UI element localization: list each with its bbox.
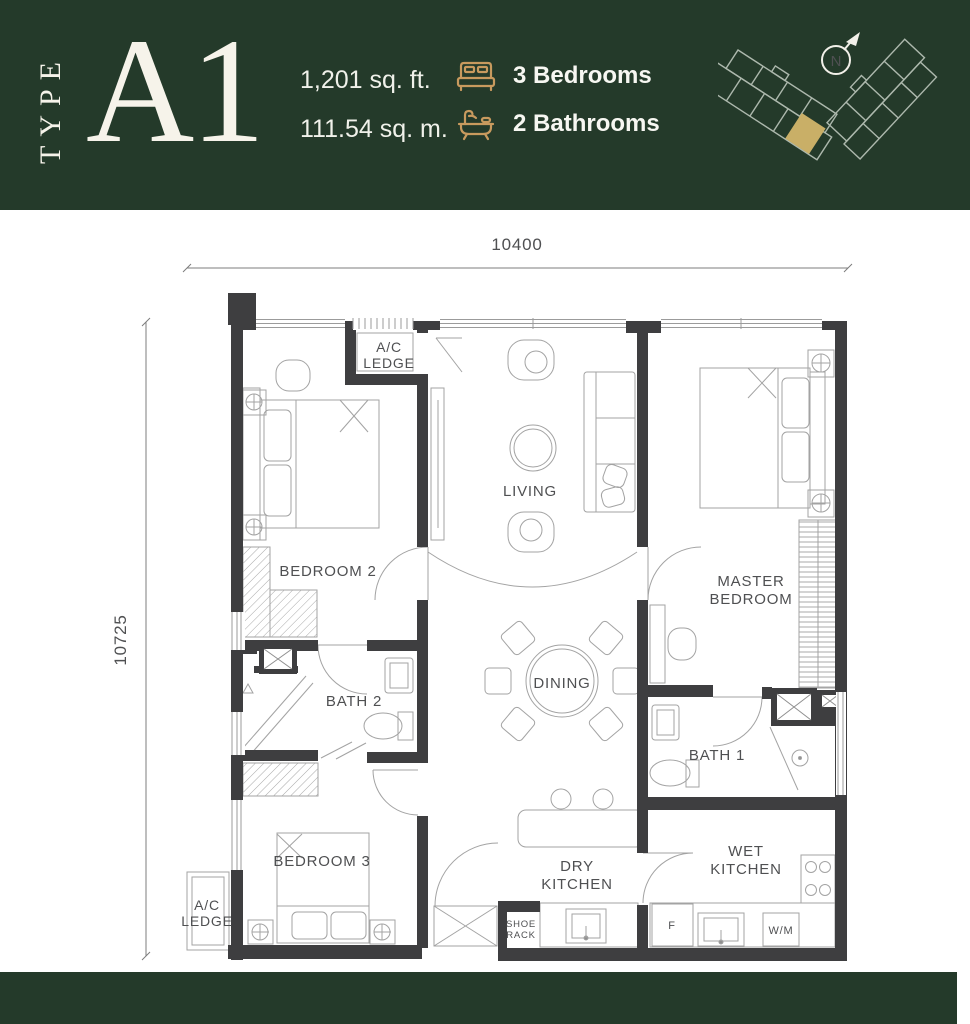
bathrooms-label: 2 Bathrooms [513, 110, 660, 138]
bedroom3-label: BEDROOM 3 [273, 853, 370, 870]
bed-icon [455, 58, 497, 94]
ac-ledge-bottom-label-2: LEDGE [181, 913, 232, 929]
header-banner: TYPE A1 1,201 sq. ft. 111.54 sq. m. 3 Be… [0, 0, 970, 210]
door-arcs [318, 547, 762, 906]
bedrooms-label: 3 Bedrooms [513, 62, 652, 90]
dining-label: DINING [533, 675, 590, 692]
bathrooms-row: 2 Bathrooms [455, 100, 660, 148]
feature-list: 3 Bedrooms 2 Bathrooms [455, 52, 660, 148]
bath2-label: BATH 2 [326, 693, 382, 710]
washer-label: W/M [768, 925, 793, 937]
bath1-label: BATH 1 [689, 747, 745, 764]
wet-kitchen-label-2: KITCHEN [710, 861, 781, 878]
compass-n: N [831, 53, 842, 70]
ac-ledge-bottom-label-1: A/C [194, 897, 220, 913]
building-key-plan: N [718, 8, 968, 203]
area-sqm: 111.54 sq. m. [300, 105, 448, 154]
dim-height-label: 10725 [111, 614, 130, 665]
highlighted-unit [786, 114, 824, 153]
wet-kitchen-label-1: WET [728, 843, 764, 860]
dim-width-label: 10400 [491, 235, 542, 254]
master-bedroom-label-2: BEDROOM [709, 591, 792, 608]
dry-kitchen-label-2: KITCHEN [541, 876, 612, 893]
bedroom2-label: BEDROOM 2 [279, 563, 376, 580]
area-block: 1,201 sq. ft. 111.54 sq. m. [300, 56, 448, 154]
bedrooms-row: 3 Bedrooms [455, 52, 660, 100]
area-sqft: 1,201 sq. ft. [300, 56, 448, 105]
dry-kitchen-label-1: DRY [560, 858, 594, 875]
ac-ledge-top-label-2: LEDGE [363, 355, 414, 371]
type-label: TYPE [36, 42, 66, 164]
shoe-rack-label-1: SHOE [506, 919, 536, 930]
footer-band [0, 972, 957, 1024]
master-bedroom-label-1: MASTER [717, 573, 784, 590]
shoe-rack-label-2: RACK [506, 930, 536, 941]
bathtub-icon [455, 106, 497, 142]
north-compass-icon: N [822, 32, 860, 74]
living-label: LIVING [503, 483, 557, 500]
fridge-label: F [668, 920, 676, 932]
unit-code: A1 [86, 16, 261, 166]
ac-ledge-top-label-1: A/C [376, 339, 402, 355]
